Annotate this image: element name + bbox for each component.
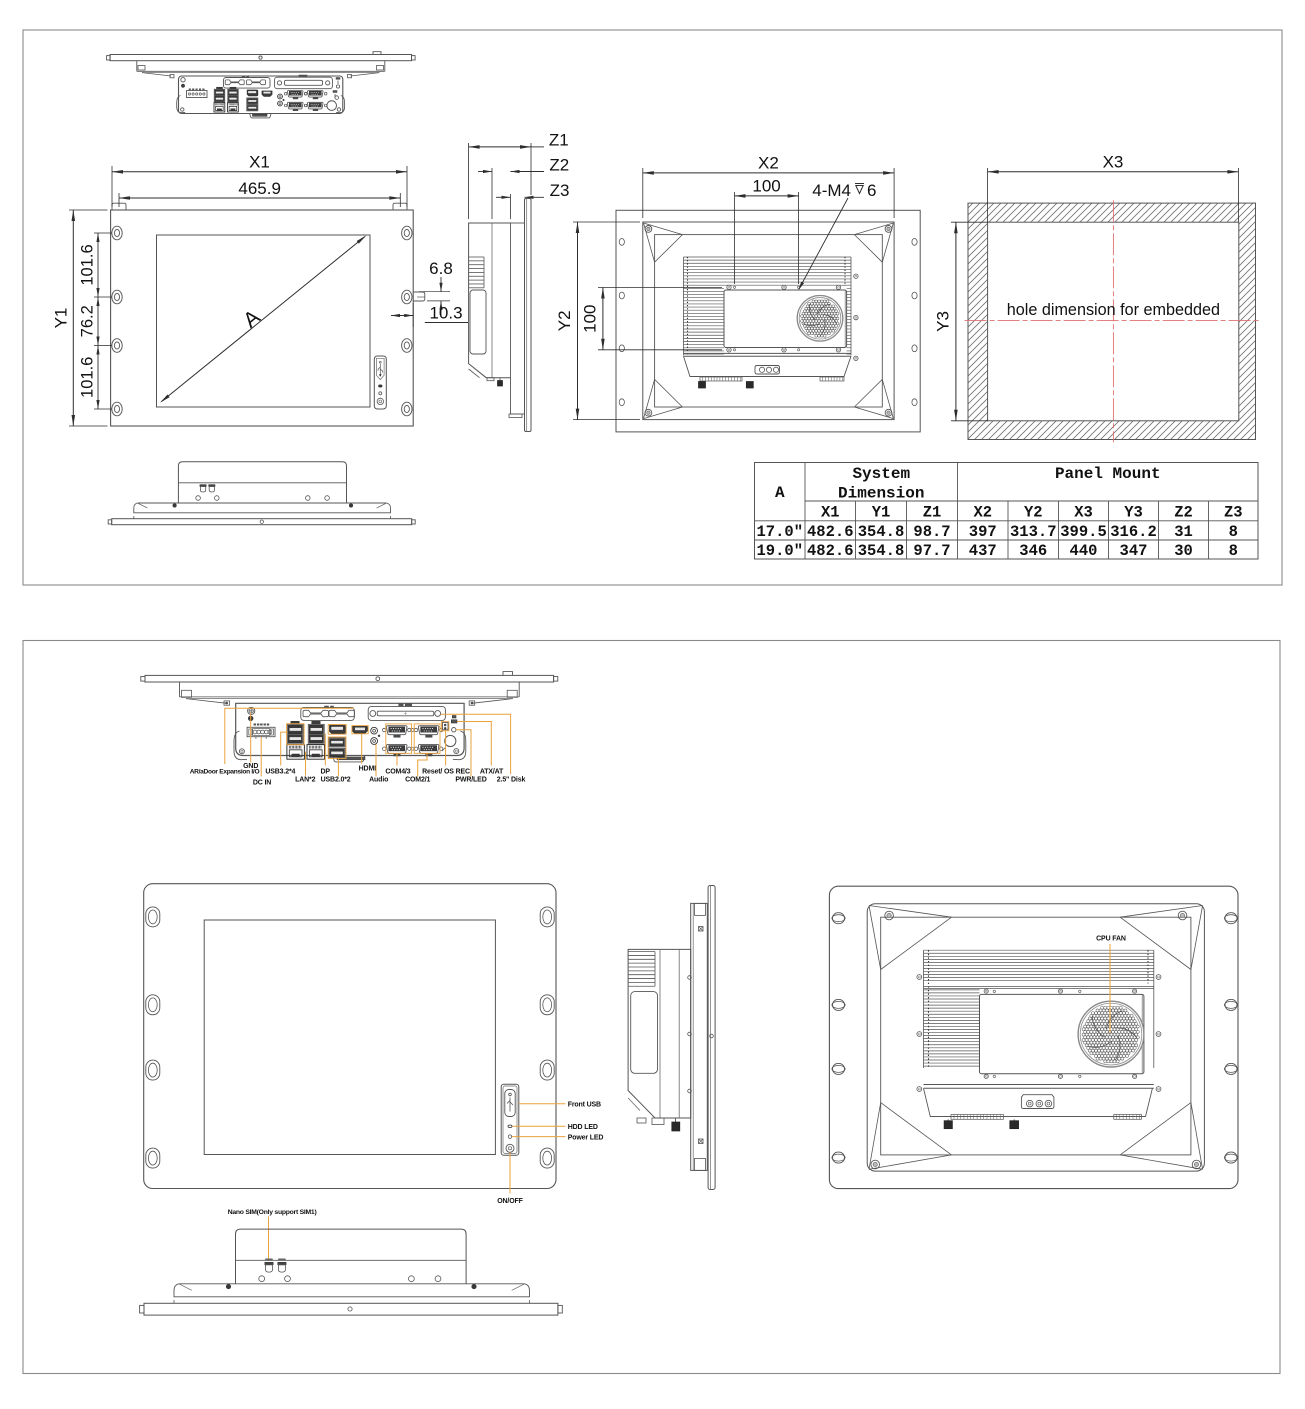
- svg-text:X2: X2: [758, 154, 779, 173]
- svg-text:Z3: Z3: [1224, 504, 1243, 522]
- svg-text:Y3: Y3: [1124, 504, 1143, 522]
- svg-text:System: System: [852, 465, 910, 483]
- svg-text:Nano SIM(Only support SIM1): Nano SIM(Only support SIM1): [228, 1209, 317, 1216]
- svg-text:USB2.0*2: USB2.0*2: [321, 776, 351, 783]
- svg-text:DP: DP: [320, 768, 330, 775]
- svg-text:6: 6: [867, 181, 876, 200]
- svg-text:30: 30: [1174, 542, 1193, 560]
- svg-text:DC IN: DC IN: [253, 780, 271, 787]
- svg-text:98.7: 98.7: [913, 523, 950, 541]
- svg-text:354.8: 354.8: [858, 542, 905, 560]
- svg-text:437: 437: [969, 542, 997, 560]
- svg-text:Z2: Z2: [549, 156, 569, 175]
- svg-text:465.9: 465.9: [238, 179, 281, 198]
- svg-text:hole dimension for embedded: hole dimension for embedded: [1007, 301, 1220, 319]
- svg-text:X1: X1: [821, 504, 840, 522]
- svg-text:100: 100: [580, 304, 599, 332]
- svg-text:Dimension: Dimension: [838, 485, 924, 503]
- svg-text:Z3: Z3: [550, 181, 570, 200]
- svg-text:Z2: Z2: [1174, 504, 1193, 522]
- svg-text:482.6: 482.6: [807, 523, 854, 541]
- svg-text:Y2: Y2: [555, 310, 574, 331]
- svg-text:GND: GND: [243, 763, 258, 770]
- svg-text:X2: X2: [973, 504, 992, 522]
- svg-text:440: 440: [1070, 542, 1098, 560]
- svg-text:6.8: 6.8: [429, 259, 453, 278]
- svg-text:2.5" Disk: 2.5" Disk: [497, 776, 526, 783]
- svg-text:17.0": 17.0": [756, 523, 803, 541]
- svg-text:76.2: 76.2: [79, 305, 97, 337]
- svg-text:COM4/3: COM4/3: [385, 768, 410, 775]
- svg-text:PWR/LED: PWR/LED: [455, 776, 486, 783]
- svg-text:Z1: Z1: [549, 131, 569, 150]
- svg-text:354.8: 354.8: [858, 523, 905, 541]
- svg-text:HDD LED: HDD LED: [568, 1124, 598, 1131]
- svg-text:CPU FAN: CPU FAN: [1096, 935, 1126, 942]
- svg-text:ATX/AT: ATX/AT: [480, 768, 504, 775]
- svg-text:316.2: 316.2: [1110, 523, 1157, 541]
- svg-text:Z1: Z1: [923, 504, 942, 522]
- svg-text:Reset/ OS REC: Reset/ OS REC: [422, 768, 470, 775]
- svg-text:8: 8: [1229, 542, 1238, 560]
- svg-text:31: 31: [1174, 523, 1193, 541]
- svg-text:ON/OFF: ON/OFF: [497, 1198, 523, 1205]
- svg-text:COM2/1: COM2/1: [405, 776, 430, 783]
- svg-text:397: 397: [969, 523, 997, 541]
- svg-text:USB3.2*4: USB3.2*4: [265, 768, 295, 775]
- svg-text:482.6: 482.6: [807, 542, 854, 560]
- svg-text:313.7: 313.7: [1010, 523, 1057, 541]
- svg-text:4-M4: 4-M4: [812, 181, 851, 200]
- svg-text:Front USB: Front USB: [568, 1102, 601, 1109]
- svg-text:19.0": 19.0": [756, 542, 803, 560]
- svg-text:X1: X1: [249, 153, 270, 172]
- svg-text:101.6: 101.6: [79, 244, 97, 285]
- svg-text:Y2: Y2: [1024, 504, 1043, 522]
- svg-text:347: 347: [1120, 542, 1148, 560]
- svg-text:X3: X3: [1074, 504, 1093, 522]
- svg-text:100: 100: [752, 177, 780, 196]
- svg-text:Y1: Y1: [872, 504, 891, 522]
- svg-text:LAN*2: LAN*2: [295, 776, 316, 783]
- svg-text:HDMI: HDMI: [359, 766, 376, 773]
- svg-text:8: 8: [1229, 523, 1238, 541]
- svg-text:Power LED: Power LED: [568, 1134, 604, 1141]
- svg-text:Y1: Y1: [52, 308, 71, 329]
- svg-text:399.5: 399.5: [1060, 523, 1107, 541]
- svg-text:101.6: 101.6: [79, 357, 97, 398]
- svg-text:A: A: [775, 484, 785, 502]
- svg-text:346: 346: [1019, 542, 1047, 560]
- svg-text:Panel Mount: Panel Mount: [1055, 465, 1161, 483]
- svg-text:X3: X3: [1103, 153, 1124, 172]
- svg-text:10.3: 10.3: [429, 304, 462, 323]
- svg-text:Y3: Y3: [933, 311, 952, 332]
- svg-text:97.7: 97.7: [913, 542, 950, 560]
- svg-text:Audio: Audio: [369, 776, 388, 783]
